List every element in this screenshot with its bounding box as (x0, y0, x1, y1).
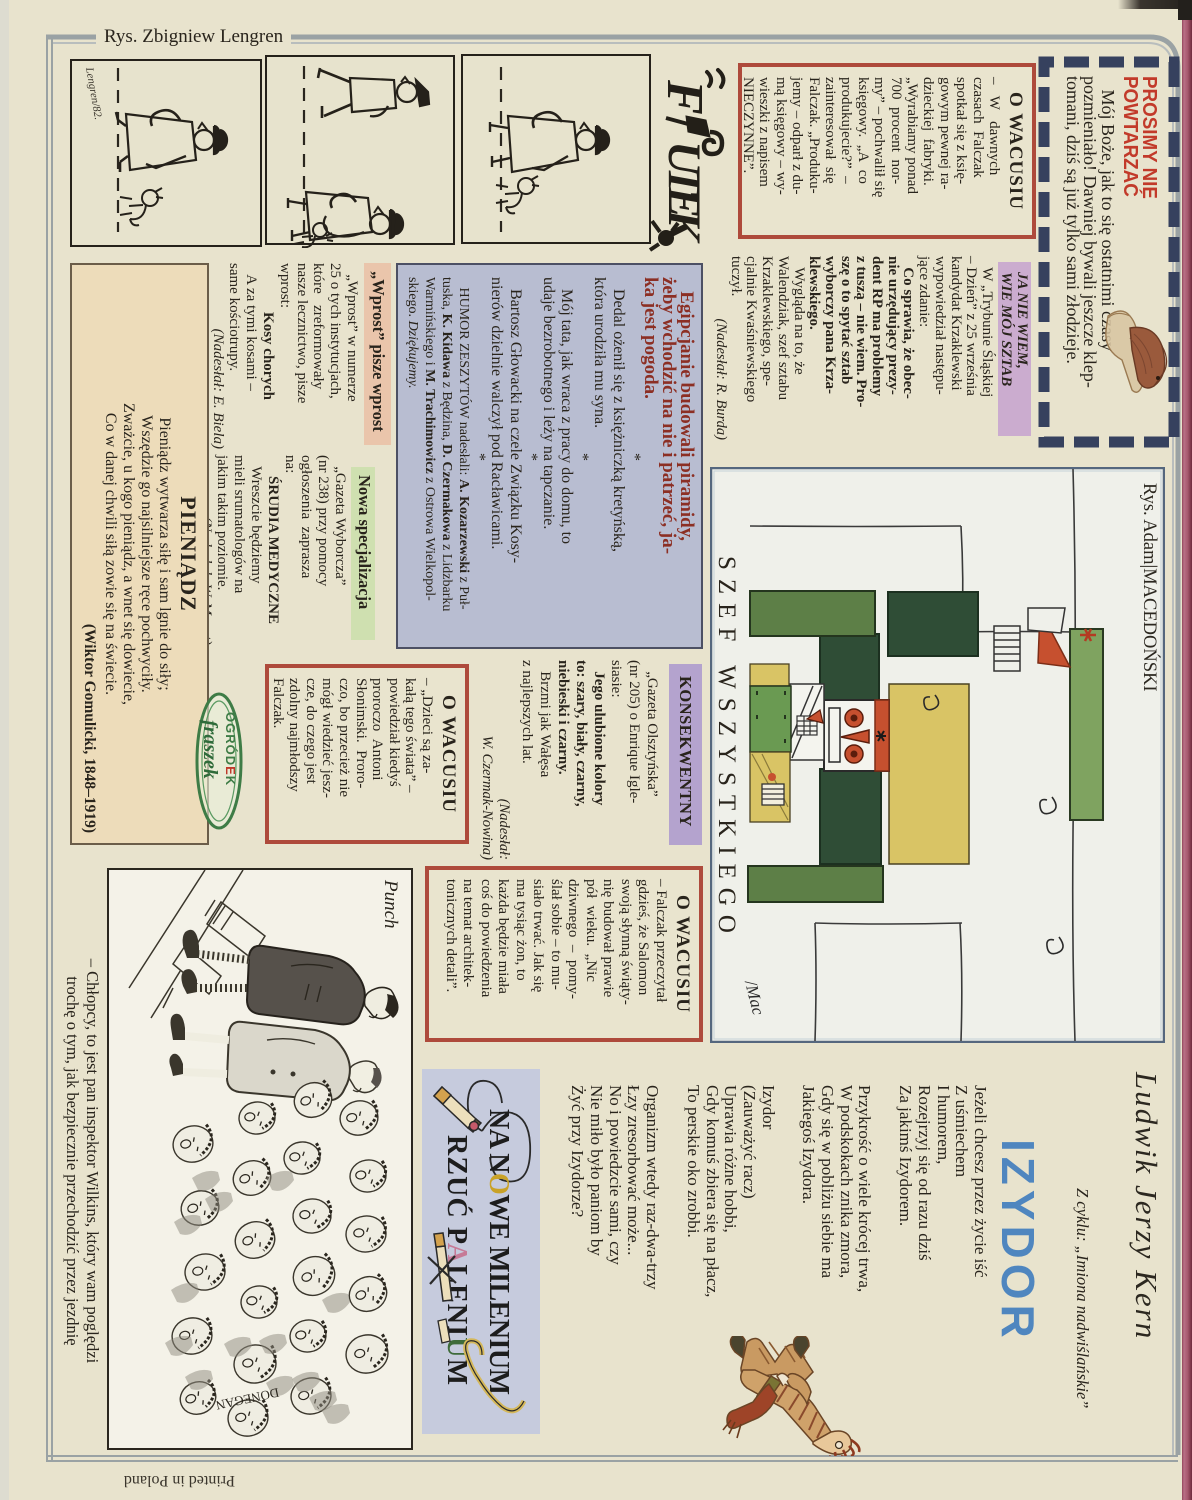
svg-text:OGRÓDEK: OGRÓDEK (223, 712, 238, 786)
svg-text:UTEK: UTEK (658, 141, 710, 244)
svg-text:F: F (656, 79, 713, 115)
svg-text:NA NOWE MILENIUM: NA NOWE MILENIUM (483, 1109, 514, 1395)
svg-text:fraszek: fraszek (199, 720, 221, 779)
svg-text:Punch: Punch (380, 879, 401, 929)
